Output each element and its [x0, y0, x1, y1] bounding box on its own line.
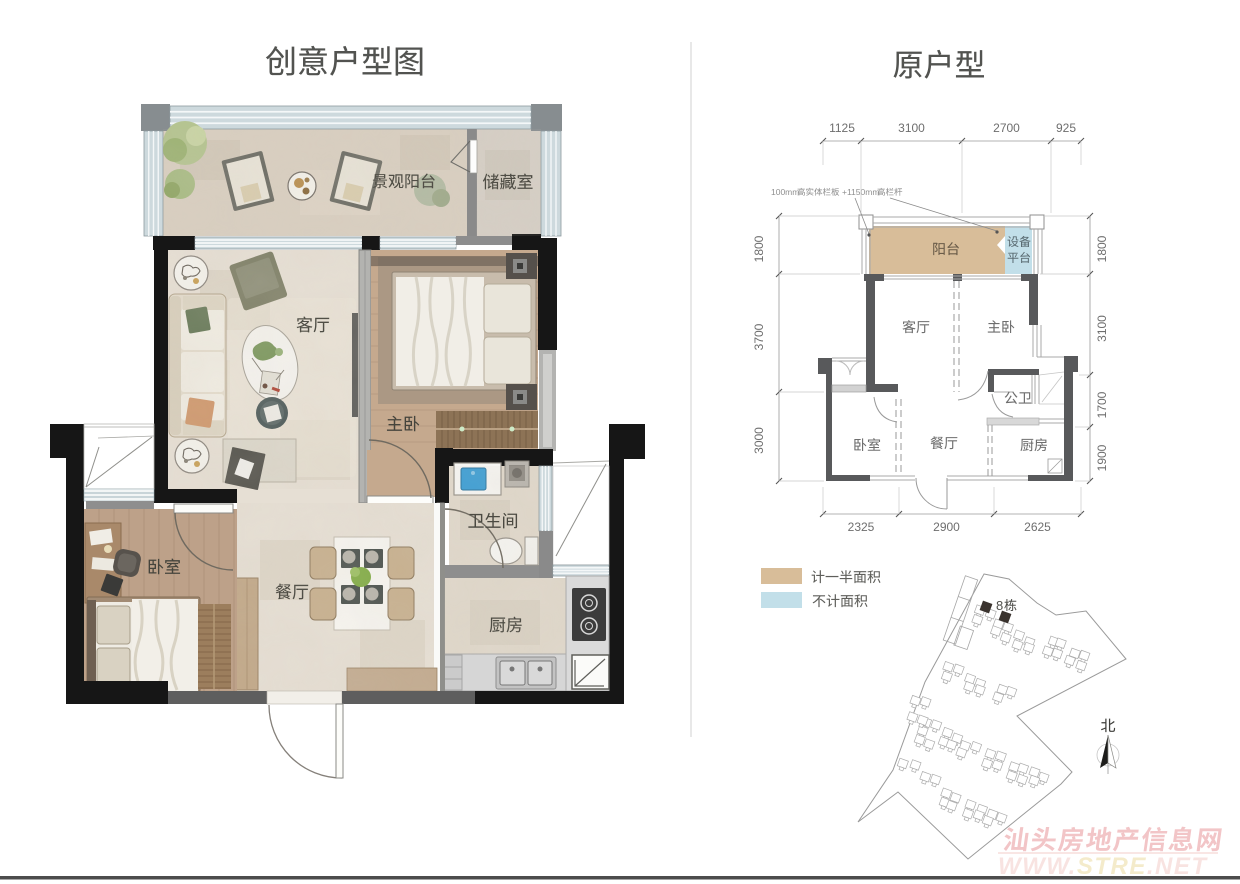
- svg-text:2900: 2900: [933, 520, 960, 534]
- svg-text:925: 925: [1056, 121, 1076, 135]
- svg-text:2325: 2325: [848, 520, 875, 534]
- svg-text:WWW.STRE.NET: WWW.STRE.NET: [998, 853, 1208, 880]
- svg-text:1125: 1125: [829, 121, 855, 135]
- svg-text:1800: 1800: [1095, 235, 1109, 262]
- svg-text:2700: 2700: [993, 121, 1020, 135]
- svg-text:3100: 3100: [898, 121, 925, 135]
- svg-text:3000: 3000: [752, 427, 766, 454]
- svg-text:100mm: 100mm: [771, 187, 799, 197]
- svg-text:1900: 1900: [1095, 444, 1109, 471]
- svg-text:1700: 1700: [1095, 391, 1109, 418]
- svg-text:2625: 2625: [1024, 520, 1051, 534]
- svg-text:3700: 3700: [752, 323, 766, 350]
- svg-text:8: 8: [996, 598, 1003, 613]
- svg-text:1800: 1800: [752, 235, 766, 262]
- svg-text:3100: 3100: [1095, 315, 1109, 342]
